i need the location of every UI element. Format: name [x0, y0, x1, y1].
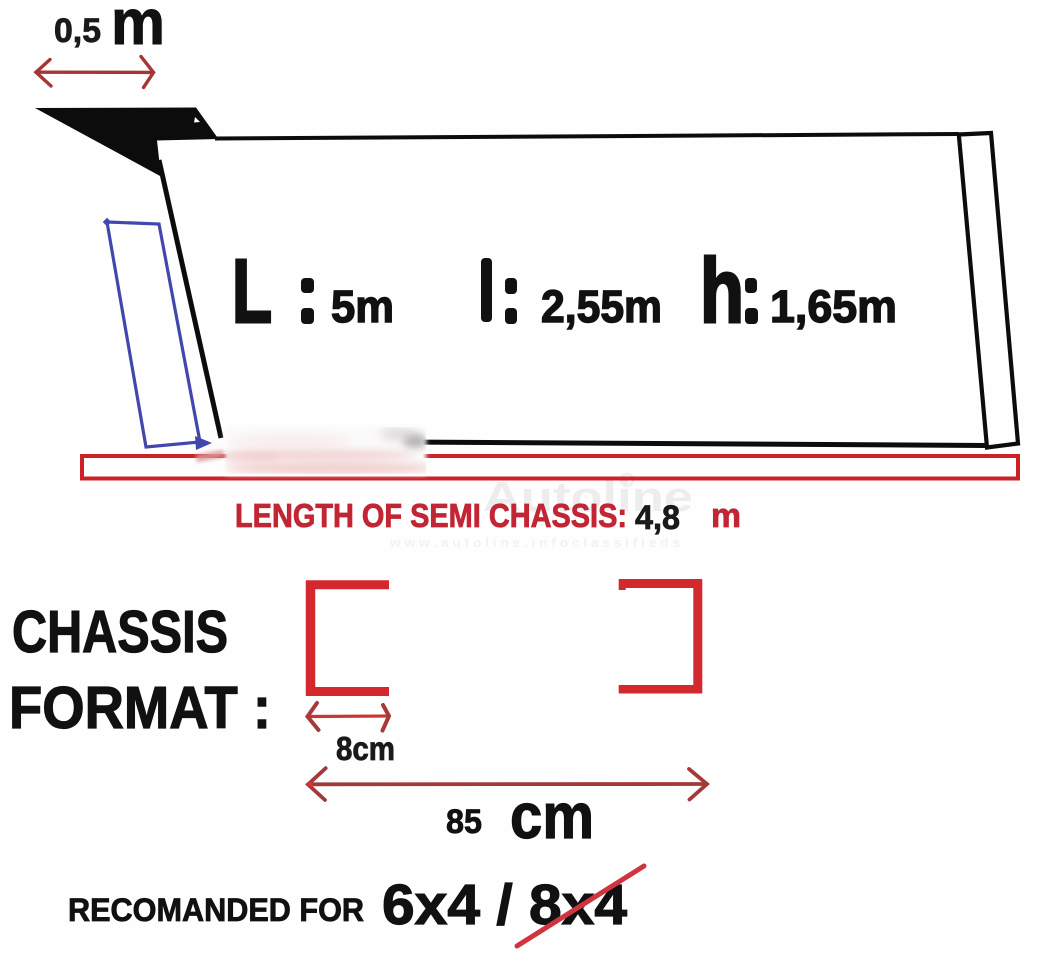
- svg-text:m: m: [111, 0, 165, 58]
- svg-text:4,8: 4,8: [635, 499, 680, 537]
- svg-text:2,55m: 2,55m: [541, 281, 662, 332]
- svg-text:m: m: [711, 497, 741, 535]
- svg-text:w w w . a u t o l i n e . i n: w w w . a u t o l i n e . i n f o c l a …: [389, 535, 680, 550]
- svg-text:0,5: 0,5: [54, 12, 101, 50]
- svg-text:1,65m: 1,65m: [770, 281, 897, 332]
- svg-text:8cm: 8cm: [336, 730, 395, 767]
- svg-text:6x4 / 8x4: 6x4 / 8x4: [382, 873, 627, 937]
- svg-text:h: h: [700, 241, 744, 342]
- svg-text:85: 85: [446, 803, 482, 841]
- svg-text:CHASSIS: CHASSIS: [12, 599, 228, 665]
- svg-text:LENGTH OF SEMI CHASSIS:: LENGTH OF SEMI CHASSIS:: [235, 497, 627, 534]
- svg-text:FORMAT :: FORMAT :: [9, 675, 271, 741]
- svg-text:RECOMANDED FOR: RECOMANDED FOR: [68, 892, 364, 928]
- svg-text:cm: cm: [510, 780, 594, 852]
- svg-text:5m: 5m: [331, 281, 394, 332]
- svg-text:L: L: [232, 242, 272, 342]
